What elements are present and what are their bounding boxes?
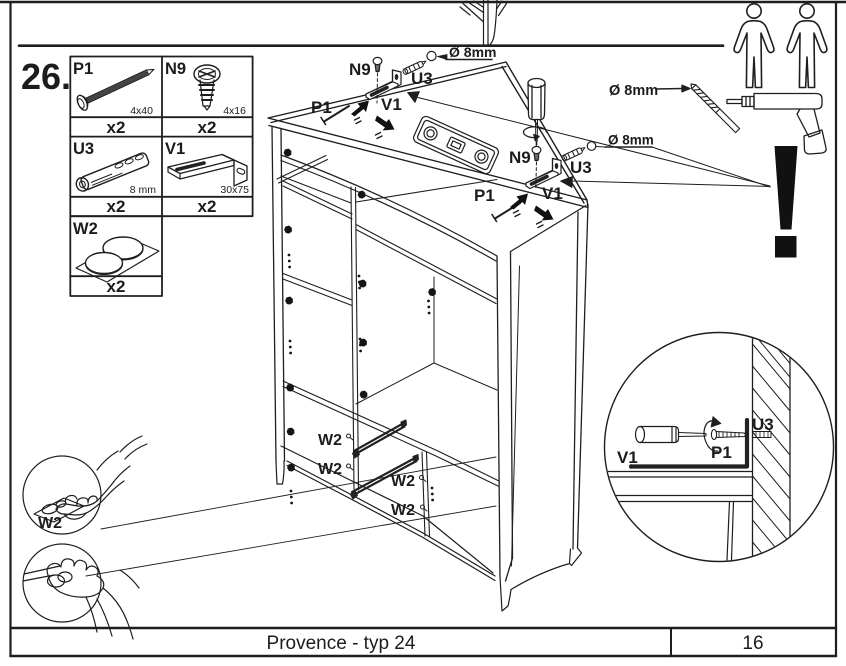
svg-text:U3: U3 (570, 158, 592, 177)
svg-text:U3: U3 (752, 415, 774, 434)
svg-text:4x40: 4x40 (130, 105, 153, 117)
svg-text:U3: U3 (73, 140, 94, 158)
svg-text:W2: W2 (38, 515, 62, 532)
svg-text:x2: x2 (107, 197, 126, 216)
svg-text:x2: x2 (198, 118, 217, 137)
svg-text:Ø 8mm: Ø 8mm (608, 133, 654, 148)
svg-text:Provence - typ 24: Provence - typ 24 (267, 633, 416, 654)
svg-text:8 mm: 8 mm (130, 184, 157, 196)
svg-text:x2: x2 (107, 277, 126, 296)
svg-text:P1: P1 (311, 98, 332, 117)
svg-text:N9: N9 (165, 60, 186, 78)
svg-text:16: 16 (742, 633, 763, 654)
svg-text:4x16: 4x16 (223, 105, 246, 117)
svg-text:V1: V1 (165, 140, 185, 158)
svg-text:P1: P1 (474, 186, 495, 205)
svg-text:W2: W2 (73, 220, 98, 238)
svg-text:P1: P1 (73, 60, 93, 78)
svg-text:P1: P1 (711, 443, 732, 462)
svg-text:V1: V1 (542, 184, 563, 203)
svg-text:W2: W2 (391, 502, 415, 519)
svg-text:x2: x2 (198, 197, 217, 216)
svg-text:x2: x2 (107, 118, 126, 137)
svg-text:U3: U3 (411, 69, 433, 88)
svg-text:N9: N9 (509, 148, 531, 167)
svg-text:W2: W2 (318, 432, 342, 449)
svg-text:V1: V1 (617, 448, 638, 467)
svg-text:Ø 8mm: Ø 8mm (449, 44, 496, 60)
svg-text:V1: V1 (381, 95, 402, 114)
svg-text:W2: W2 (318, 461, 342, 478)
svg-text:N9: N9 (349, 60, 371, 79)
svg-text:26.: 26. (21, 56, 71, 97)
svg-text:Ø 8mm: Ø 8mm (609, 83, 658, 99)
